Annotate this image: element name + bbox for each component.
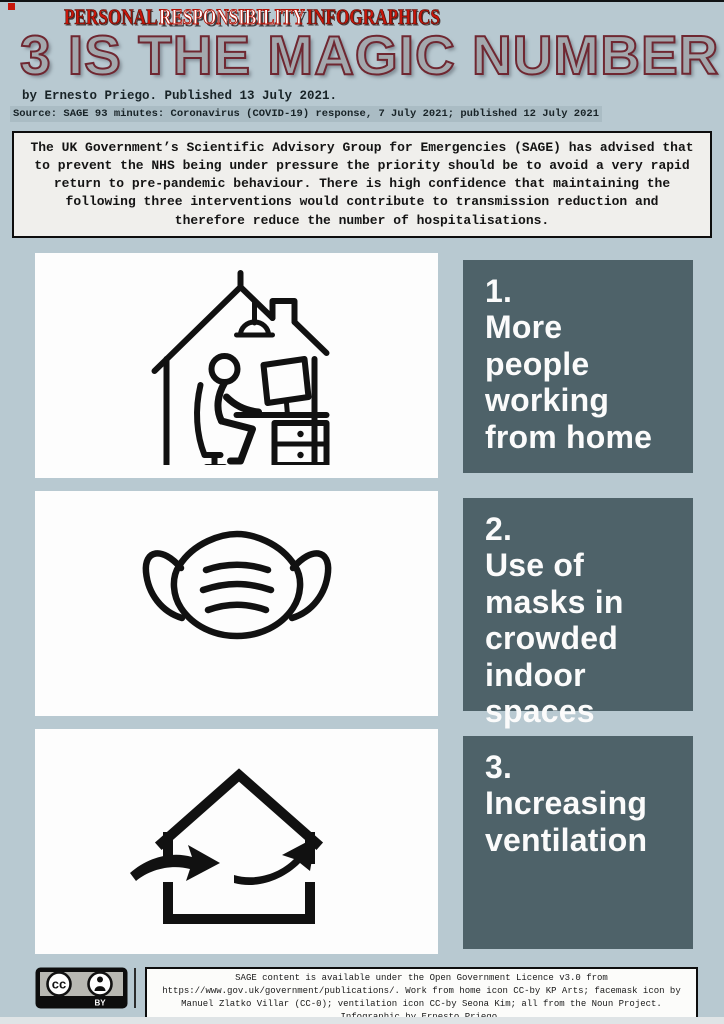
credits-box: SAGE content is available under the Open… (145, 967, 698, 1024)
section-3-number: 3. (485, 749, 693, 785)
section-1-number: 1. (485, 273, 693, 309)
section-panel-2: 2. Use of masks in crowded indoor spaces (463, 498, 693, 711)
bottom-edge-strip (0, 1017, 724, 1024)
kicker-word-personal: PERSONAL (64, 6, 157, 28)
cc-logo-text: cc (52, 976, 66, 991)
section-panel-3: 3. Increasing ventilation (463, 736, 693, 949)
section-1-label: More people working from home (485, 309, 667, 455)
icon-box-work-from-home (35, 253, 438, 478)
kicker-word-infographics: INFOGRAPHICS (306, 6, 439, 28)
section-row-1: 1. More people working from home (35, 253, 724, 478)
icon-box-ventilation (35, 729, 438, 954)
by-label: BY (94, 998, 106, 1007)
section-2-number: 2. (485, 511, 693, 547)
footer: cc BY SAGE content is available under th… (35, 967, 724, 1024)
ventilation-icon (122, 751, 352, 931)
cc-by-license-badge: cc BY (35, 967, 128, 1009)
sections: 1. More people working from home 2. Use … (0, 253, 724, 954)
intro-text: The UK Government’s Scientific Advisory … (29, 139, 696, 230)
infographic-poster: PERSONAL RESPONSIBILITY INFOGRAPHICS 3 I… (0, 0, 724, 1024)
page-title: 3 IS THE MAGIC NUMBER (20, 29, 724, 82)
person-icon (97, 976, 103, 982)
section-row-2: 2. Use of masks in crowded indoor spaces (35, 491, 724, 716)
work-from-home-icon (134, 265, 339, 465)
kicker: PERSONAL RESPONSIBILITY INFOGRAPHICS (64, 6, 579, 28)
intro-box: The UK Government’s Scientific Advisory … (12, 131, 712, 238)
icon-box-face-mask (35, 491, 438, 716)
badge-divider-line (134, 968, 136, 1008)
section-3-label: Increasing ventilation (485, 785, 667, 858)
section-2-label: Use of masks in crowded indoor spaces (485, 547, 667, 729)
byline: by Ernesto Priego. Published 13 July 202… (22, 89, 724, 103)
source-line: Source: SAGE 93 minutes: Coronavirus (CO… (10, 106, 602, 122)
section-row-3: 3. Increasing ventilation (35, 729, 724, 954)
red-corner-mark (8, 3, 15, 10)
kicker-word-responsibility: RESPONSIBILITY (159, 6, 305, 28)
top-border-line (0, 0, 724, 2)
section-panel-1: 1. More people working from home (463, 260, 693, 473)
face-mask-icon (132, 518, 342, 658)
